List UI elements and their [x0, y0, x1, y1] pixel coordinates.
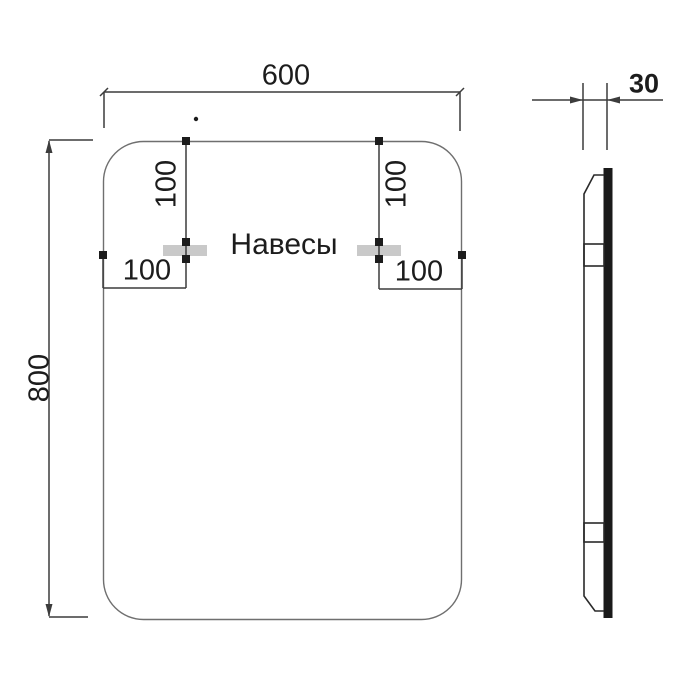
dimension-lines	[49, 83, 663, 617]
marker-top-edge-left	[182, 137, 190, 145]
marker-side-edge-right	[458, 251, 466, 259]
mirror-front-outline	[104, 142, 462, 620]
technical-drawing-canvas: 600 800 100 100 100 100 Навесы 30	[0, 0, 690, 690]
side-view-bracket-upper	[584, 244, 604, 266]
mounts-annotation-label: Навесы	[230, 230, 337, 260]
dim-mount-top-offset-left-label: 100	[153, 160, 182, 208]
marker-mount-right-lower	[375, 255, 383, 263]
side-view-profile	[584, 175, 604, 611]
dim-mount-top-offset-right-label: 100	[383, 160, 412, 208]
dim-width-extension-lines	[104, 92, 460, 131]
dimension-arrowheads	[46, 97, 621, 618]
side-view-profile-outline	[584, 175, 604, 611]
dim-depth-extension-lines	[583, 83, 607, 150]
drawing-linework	[0, 0, 690, 690]
marker-side-edge-left	[99, 251, 107, 259]
marker-top-edge-right	[375, 137, 383, 145]
marker-mount-left-upper	[182, 238, 190, 246]
dim-depth-arrow-right	[607, 97, 620, 104]
dim-mount-side-offset-left-label: 100	[123, 257, 171, 286]
dim-depth-arrow-left	[570, 97, 583, 104]
dim-height-label: 800	[26, 354, 55, 402]
dim-depth-label: 30	[629, 71, 659, 98]
side-view-bracket-lower	[584, 523, 604, 542]
dim-height-arrow-bottom	[46, 604, 53, 617]
marker-mount-right-upper	[375, 238, 383, 246]
marker-mount-left-lower	[182, 255, 190, 263]
marker-top-dot	[194, 117, 198, 121]
dim-height-extension-lines	[49, 140, 93, 617]
dim-height-arrow-top	[46, 140, 53, 153]
dim-width-label: 600	[262, 62, 310, 91]
side-view-glass-edge	[604, 168, 613, 618]
dim-mount-side-offset-right-label: 100	[395, 258, 443, 287]
